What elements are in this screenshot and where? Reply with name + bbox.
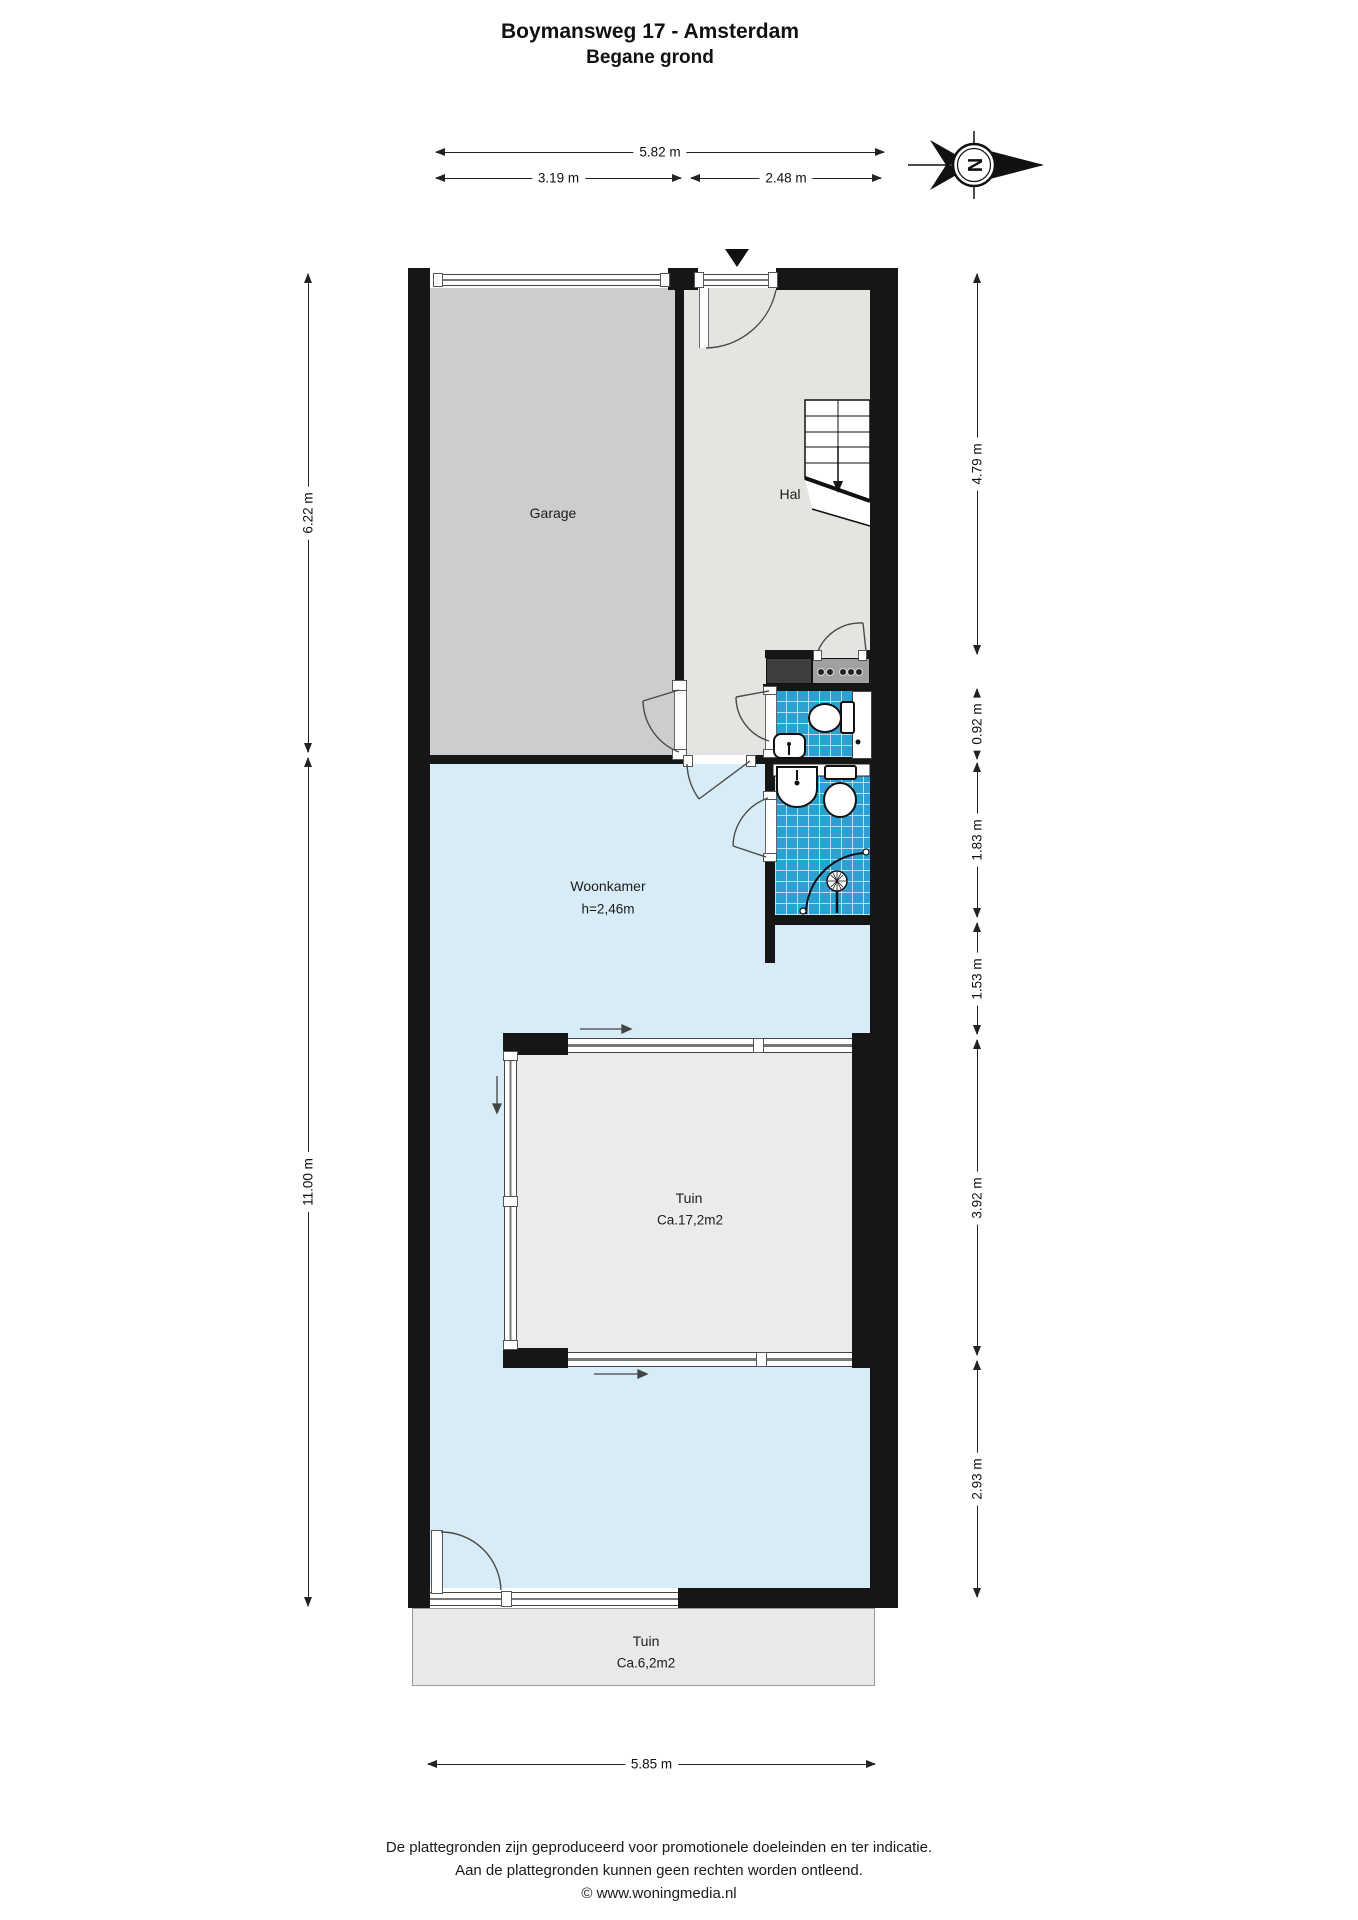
garage-floor [430,288,675,755]
wall-counter-bottom [763,684,870,691]
dim-left-lower: 11.00 m [300,757,316,1607]
bottom-door-threshold [430,1592,505,1606]
floorplan-page: Boymansweg 17 - Amsterdam Begane grond [0,0,1358,1920]
dim-label: 4.79 m [970,437,985,490]
wall-right-tuin [852,1033,898,1368]
page-title: Boymansweg 17 - Amsterdam Begane grond [250,20,1050,69]
wc-door-leaf [765,692,777,750]
jamb [683,755,693,767]
dim-right-4: 1.53 m [969,922,985,1035]
dim-left-upper: 6.22 m [300,273,316,753]
wc-side-door-panel [852,691,872,759]
entrance-threshold [698,274,776,286]
wall-bottom-right [678,1588,898,1608]
bathroom-floor [775,765,870,915]
dim-top-total: 5.82 m [435,144,885,160]
dim-label: 1.83 m [970,813,985,866]
compass-north-icon: N [908,131,1044,199]
dim-right-5: 3.92 m [969,1039,985,1356]
dim-label: 2.48 m [759,171,812,186]
jamb [501,1591,512,1607]
garage-label: Garage [530,505,577,521]
dim-label: 11.00 m [301,1152,316,1212]
footer-disclaimer: De plattegronden zijn geproduceerd voor … [279,1836,1039,1905]
dark-appliance-unit [766,658,812,684]
bathroom-door-leaf [765,797,777,855]
tuin-bottom-window [568,1352,852,1367]
hal-label: Hal [779,486,800,502]
dim-right-2: 0.92 m [969,688,985,760]
woonkamer-height-note: h=2,46m [582,902,635,917]
garden-door-leaf [431,1530,443,1594]
jamb [858,650,867,661]
tuin-top-window [568,1038,852,1053]
jamb [768,272,778,288]
wall-garage-hal-divider [675,288,684,687]
jamb [660,273,670,287]
jamb [763,853,777,862]
compass-letter: N [963,158,985,172]
garage-door-window [433,274,668,286]
jamb [763,749,777,758]
woonkamer-label: Woonkamer [570,878,645,894]
jamb [753,1038,764,1053]
tuin-inner-label: Tuin [676,1190,703,1206]
footer-line-1: De plattegronden zijn geproduceerd voor … [279,1836,1039,1859]
footer-line-2: Aan de plattegronden kunnen geen rechten… [279,1859,1039,1882]
dim-top-left: 3.19 m [435,170,682,186]
garage-hal-door-leaf [674,689,687,749]
wall-woonkamer-top-left [430,755,687,764]
jamb [694,272,704,288]
tuin-outer-area-note: Ca.6,2m2 [617,1656,676,1671]
jamb [503,1051,518,1061]
jamb [813,650,822,661]
dim-right-3: 1.83 m [969,762,985,918]
wall-tuin-bottom-block [503,1348,568,1368]
wall-left [408,268,430,1608]
dim-label: 3.19 m [532,171,585,186]
jamb [672,680,687,691]
wall-stub [765,925,775,963]
jamb [756,1352,767,1367]
dim-label: 6.22 m [301,486,316,539]
dim-right-1: 4.79 m [969,273,985,655]
dim-label: 5.82 m [633,145,686,160]
dim-label: 1.53 m [970,952,985,1005]
wall-top-right [776,268,898,290]
counter-unit [812,658,870,684]
tuin-outer-label: Tuin [633,1633,660,1649]
wc-floor [775,691,852,757]
jamb [746,755,756,767]
dim-label: 0.92 m [970,697,985,750]
bottom-window [505,1592,678,1606]
dim-label: 5.85 m [625,1757,678,1772]
title-floor: Begane grond [250,47,1050,69]
dim-bottom-total: 5.85 m [427,1756,876,1772]
entrance-arrow-icon [725,249,749,267]
jamb [763,686,777,695]
tuin-inner-area-note: Ca.17,2m2 [657,1213,723,1228]
wall-right-lower [870,1368,898,1608]
jamb [763,791,777,800]
jamb [503,1196,518,1207]
title-address: Boymansweg 17 - Amsterdam [250,20,1050,44]
dim-label: 3.92 m [970,1171,985,1224]
dim-label: 2.93 m [970,1452,985,1505]
jamb [433,273,443,287]
wall-counter-top-left [765,650,818,658]
dim-right-6: 2.93 m [969,1360,985,1598]
wall-bottom-left [408,1588,430,1608]
footer-line-3: © www.woningmedia.nl [279,1882,1039,1905]
wall-bath-bottom [765,915,898,925]
entrance-door-leaf [699,288,709,348]
jamb [503,1340,518,1350]
dim-top-right: 2.48 m [690,170,882,186]
